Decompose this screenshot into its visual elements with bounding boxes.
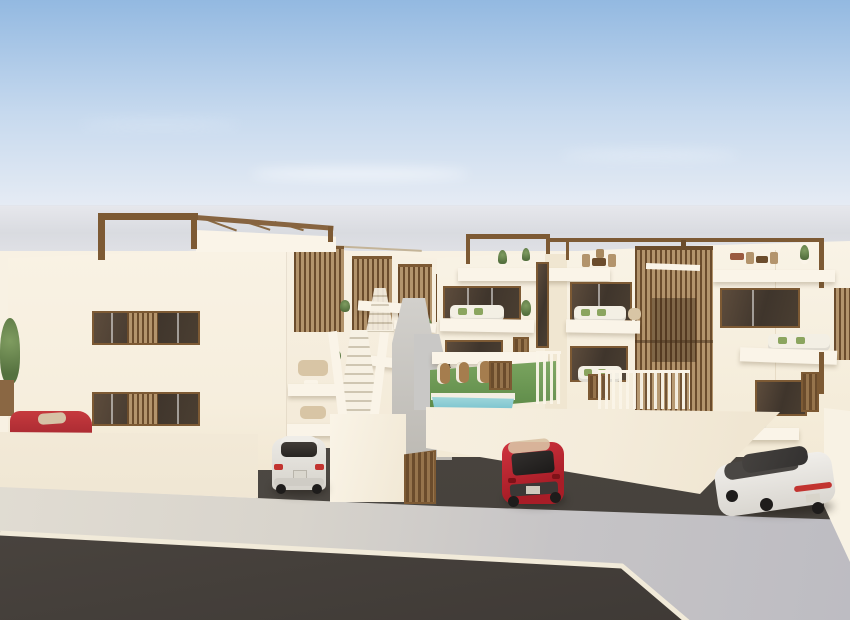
sun-lounger [456, 362, 469, 383]
tree-foliage [0, 318, 20, 384]
slit-window [536, 262, 549, 348]
tree-planter [0, 380, 14, 416]
roof-bench [730, 253, 744, 260]
left-window-lower [92, 392, 200, 426]
slat-top-beam [352, 256, 392, 259]
sofa-cushion [778, 337, 787, 344]
suv-wheel [812, 502, 824, 514]
left-window-upper [92, 311, 200, 345]
slat-tower-beam [635, 246, 713, 250]
roof-chair [746, 252, 754, 264]
roof-plant [800, 245, 809, 264]
sofa-cushion [458, 308, 467, 315]
roof-chair [582, 254, 590, 267]
roof-table [592, 258, 606, 266]
pergola-post [546, 234, 550, 254]
hatchback-taillight [508, 478, 516, 483]
pergola-beam-long [548, 238, 824, 242]
cloud [80, 120, 240, 129]
window-upper-right [720, 288, 800, 328]
roof-chair [770, 252, 778, 264]
picket-fence [598, 370, 690, 409]
pergola-post [191, 213, 197, 249]
pool-picket-fence [536, 351, 561, 404]
roof-plant [498, 250, 507, 268]
hatchback-taillight [552, 474, 560, 479]
terrace-plant [340, 300, 350, 312]
roof-chair [608, 254, 616, 267]
window-slat-shutter [127, 394, 158, 424]
window-mullion [752, 290, 754, 326]
balcony-parapet [440, 318, 534, 333]
sedan-wheel [312, 484, 322, 494]
corner-slat-panel [834, 288, 850, 360]
cloud [560, 150, 740, 160]
sea-horizon [0, 205, 850, 251]
pergola-front-beam [98, 213, 198, 220]
sofa-cushion [796, 337, 805, 344]
sedan-taillight [315, 464, 324, 470]
balcony-plant [521, 300, 531, 316]
roof-parapet [713, 270, 835, 282]
balcony-parapet [566, 319, 640, 333]
sofa-cushion [597, 309, 606, 316]
window-mullion [177, 394, 179, 424]
balcony-chair [628, 308, 641, 320]
roof-table [756, 256, 768, 263]
sun-lounger [437, 363, 450, 384]
wicker-sofa [300, 406, 326, 419]
hatchback-wheel [508, 496, 519, 507]
window-mullion [177, 313, 179, 343]
pergola-post [466, 234, 470, 264]
wicker-sofa [298, 360, 328, 376]
suv-wheel [760, 498, 773, 511]
stair-base-volume [330, 414, 406, 502]
entry-door [801, 372, 819, 412]
pergola-post [98, 213, 105, 260]
pool-gate [489, 361, 512, 390]
architectural-render [0, 0, 850, 620]
sofa-cushion [474, 308, 483, 315]
roof-plant [522, 248, 530, 265]
hatchback-rear-window [511, 450, 555, 476]
sedan-rear-window [281, 442, 317, 457]
window-ground-right [755, 380, 807, 416]
cloud [250, 168, 470, 180]
slat-top-beam [398, 264, 432, 267]
window-slat-shutter [127, 313, 158, 343]
pergola-post-lower [819, 352, 824, 394]
roof-parapet [458, 268, 610, 281]
hidden-car-cover [38, 412, 67, 425]
slat-screen [294, 248, 344, 332]
slat-tower-rail [635, 340, 713, 343]
sedan-taillight [274, 464, 283, 470]
roof-chair [596, 249, 604, 258]
window-mullion [111, 313, 113, 343]
garage-door [404, 450, 436, 504]
window-mullion [111, 394, 113, 424]
pergola-beam [466, 234, 550, 239]
slat-tower-void [652, 298, 696, 362]
hatchback-wheel [550, 492, 561, 503]
sedan-wheel [276, 484, 286, 494]
pergola-far-post [328, 226, 333, 242]
suv-wheel [726, 490, 738, 502]
hatchback-plate [526, 486, 540, 494]
pergola-post [566, 238, 569, 260]
sofa-cushion [581, 309, 590, 316]
